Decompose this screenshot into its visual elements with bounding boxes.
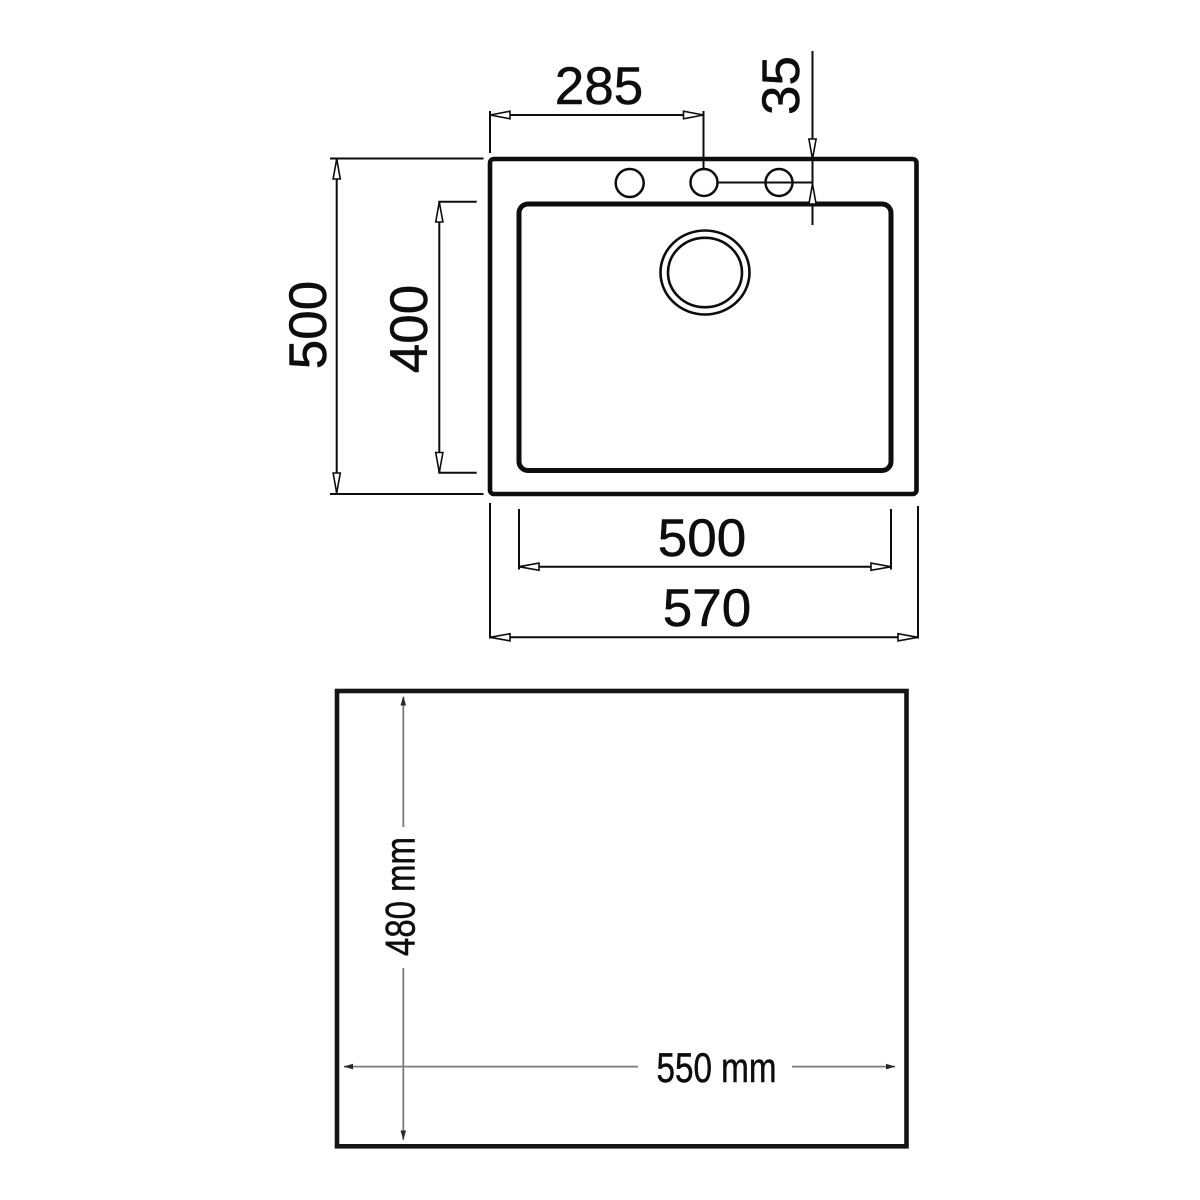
svg-text:400: 400 [380, 285, 439, 373]
svg-text:285: 285 [555, 57, 643, 116]
svg-text:480 mm: 480 mm [377, 837, 424, 956]
svg-text:500: 500 [658, 509, 746, 568]
svg-text:500: 500 [279, 281, 338, 369]
svg-text:550 mm: 550 mm [657, 1044, 777, 1091]
svg-text:570: 570 [663, 579, 751, 638]
svg-text:35: 35 [752, 56, 811, 115]
